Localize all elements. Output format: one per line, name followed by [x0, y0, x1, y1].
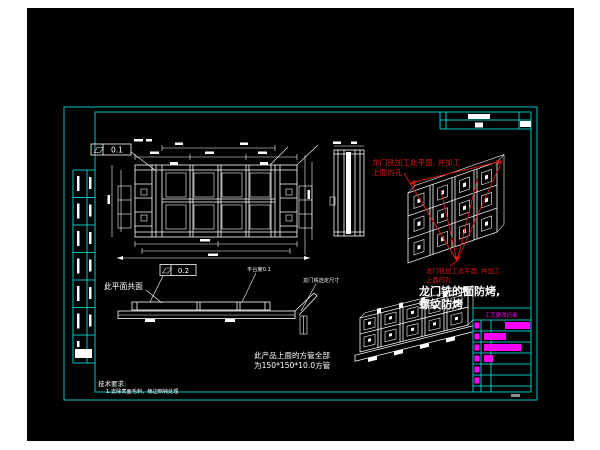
- gantry-dim-label: 龙门铣选定尺寸: [303, 276, 339, 284]
- red-note-top-line1: 龙门铣加工此平面, 并加工: [372, 157, 461, 167]
- gdt-mid-value: 0.2: [178, 267, 189, 275]
- red-note-top-line2: 上面的孔: [372, 167, 403, 177]
- highlighted-entry: [475, 123, 483, 128]
- highlighted-entry: [468, 114, 490, 119]
- tech-requirements-item: 1.去除表面毛刺，棱边倒钝处理: [106, 387, 179, 395]
- mask-note-line2: 螺纹防烤: [419, 297, 463, 311]
- model-space-background: [27, 8, 574, 441]
- revision-table-header: 工艺更改记录: [485, 311, 518, 319]
- tube-note-line2: 为150*150*10.0方管: [254, 360, 331, 370]
- platform-flatness-label: 平台度0.1: [247, 265, 271, 273]
- cad-viewport: 龙门铣加工此平面, 并加工 上面的孔 龙门铣加工此平面, 并加工 上面的孔 0.…: [0, 0, 600, 450]
- tube-note-line1: 此产品上面的方管全部: [254, 350, 330, 360]
- red-note-bottom-line1: 龙门铣加工此平面, 并加工: [426, 266, 501, 275]
- gdt-top-value: 0.1: [111, 146, 123, 155]
- tech-requirements-title: 技术要求:: [98, 379, 126, 388]
- coplanar-label: 此平面共面: [104, 281, 143, 291]
- red-note-bottom-line2: 上面的孔: [426, 275, 452, 284]
- sheet-number-mark: [511, 394, 520, 397]
- cad-drawing: 龙门铣加工此平面, 并加工 上面的孔 龙门铣加工此平面, 并加工 上面的孔 0.…: [0, 0, 600, 450]
- mask-note-line1: 龙门铣的面防烤,: [418, 284, 500, 298]
- highlighted-entry: [520, 121, 531, 127]
- highlighted-cell: [75, 349, 92, 358]
